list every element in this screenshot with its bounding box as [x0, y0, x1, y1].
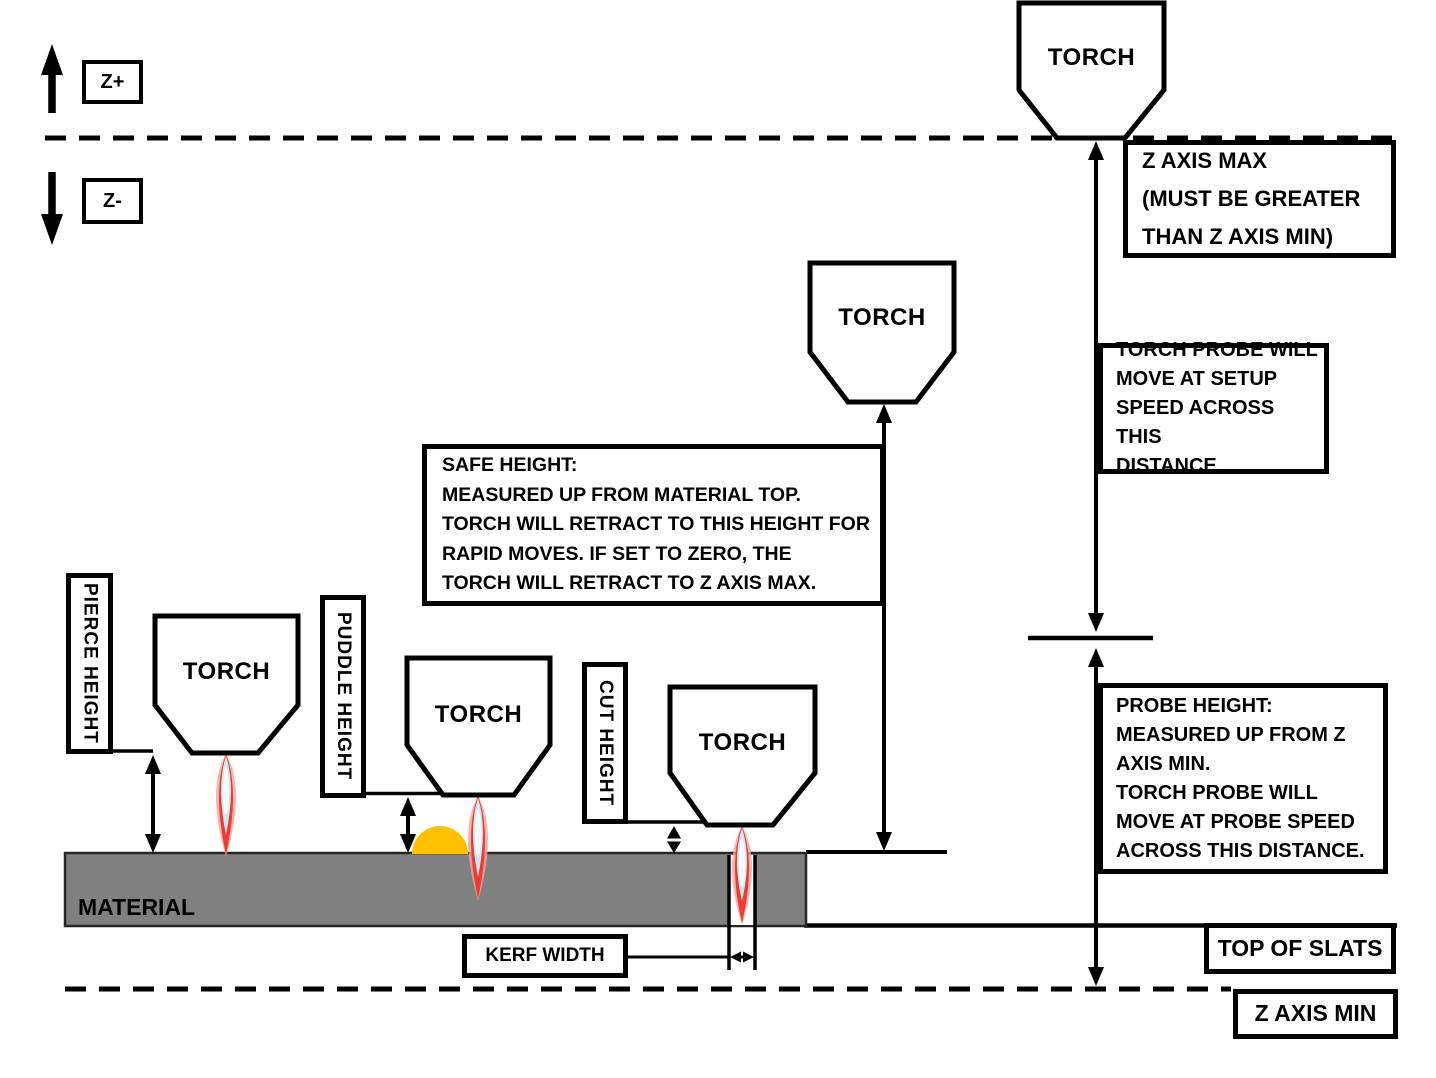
- torch-label-pierce: TORCH: [155, 658, 298, 686]
- puddle-height-arrow: [400, 797, 416, 853]
- cut-height-arrow: [667, 826, 681, 853]
- diagram-canvas: TORCH TORCH TORCH TORCH TORCH Z+ Z- Z AX…: [0, 0, 1436, 1078]
- setup-speed-callout: TORCH PROBE WILL MOVE AT SETUP SPEED ACR…: [1098, 343, 1329, 474]
- kerf-width-label-box: KERF WIDTH: [462, 934, 628, 978]
- torch-label-puddle: TORCH: [407, 701, 550, 729]
- torch-label-safe-height: TORCH: [810, 304, 954, 332]
- top-of-slats-label-box: TOP OF SLATS: [1204, 923, 1396, 974]
- z-minus-arrow-icon: [41, 172, 63, 245]
- z-axis-max-callout: Z AXIS MAX (MUST BE GREATER THAN Z AXIS …: [1123, 140, 1396, 258]
- torch-label-cut: TORCH: [670, 729, 815, 757]
- torch-body-safe-height: [810, 263, 954, 402]
- probe-height-callout: PROBE HEIGHT: MEASURED UP FROM Z AXIS MI…: [1098, 683, 1388, 874]
- torch-label-zmax: TORCH: [1019, 44, 1164, 72]
- puddle-height-label-box: PUDDLE HEIGHT: [320, 595, 366, 798]
- cut-height-label-box: CUT HEIGHT: [582, 662, 628, 824]
- safe-height-callout: SAFE HEIGHT: MEASURED UP FROM MATERIAL T…: [422, 444, 885, 606]
- pierce-flame-icon: [216, 754, 236, 857]
- pierce-height-label-box: PIERCE HEIGHT: [66, 573, 113, 754]
- puddle-icon: [412, 826, 468, 854]
- material-label: MATERIAL: [78, 894, 195, 921]
- z-plus-label-box: Z+: [82, 60, 143, 104]
- kerf-width-arrow: [730, 952, 754, 963]
- z-axis-min-label-box: Z AXIS MIN: [1233, 989, 1398, 1039]
- pierce-height-arrow: [145, 755, 161, 853]
- z-minus-label-box: Z-: [82, 178, 143, 224]
- z-plus-arrow-icon: [41, 44, 63, 113]
